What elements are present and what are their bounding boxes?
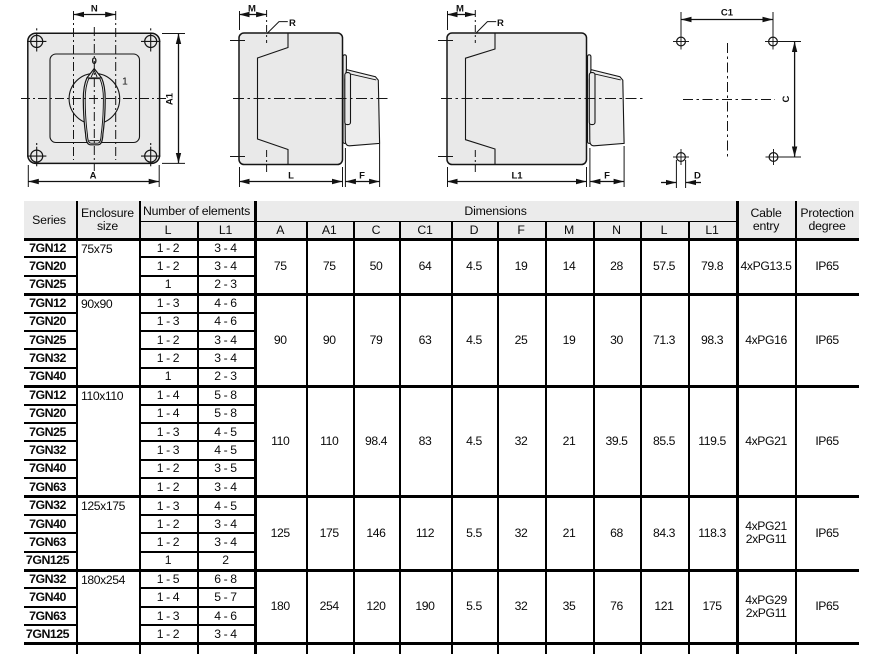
svg-text:0: 0: [92, 56, 97, 67]
svg-text:A1: A1: [165, 92, 176, 105]
svg-text:R: R: [289, 18, 296, 29]
svg-text:F: F: [359, 171, 365, 182]
svg-text:N: N: [91, 4, 98, 15]
svg-text:F: F: [604, 171, 610, 182]
svg-text:C: C: [781, 95, 792, 102]
svg-text:C1: C1: [721, 8, 734, 19]
svg-text:M: M: [456, 4, 464, 15]
svg-text:L: L: [288, 171, 294, 182]
svg-text:1: 1: [122, 76, 128, 88]
svg-text:A: A: [90, 171, 97, 182]
svg-text:M: M: [248, 4, 256, 15]
svg-text:D: D: [694, 171, 701, 182]
svg-text:R: R: [497, 18, 504, 29]
svg-text:L1: L1: [511, 171, 523, 182]
